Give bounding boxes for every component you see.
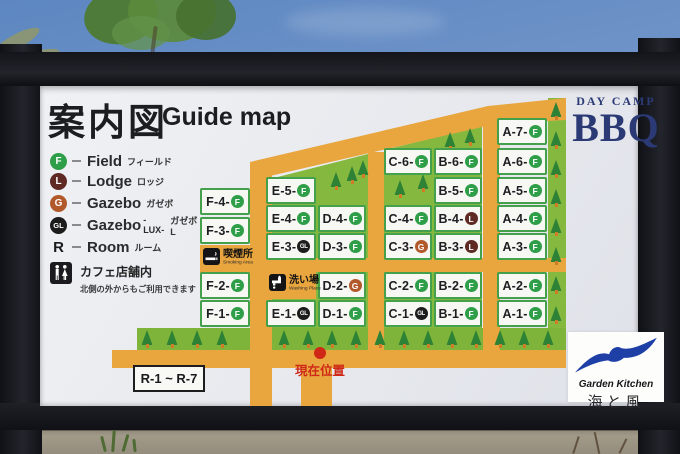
room-range-box: R-1 ~ R-7 — [133, 365, 205, 392]
sign-frame-top — [0, 52, 680, 86]
twig — [594, 432, 601, 454]
grass-strip-bottom — [137, 328, 566, 350]
sign-post-left — [0, 44, 42, 454]
plant — [122, 434, 130, 452]
washing-label-en: Washing Place — [289, 286, 321, 291]
tree-foliage — [112, 16, 170, 50]
road-vertical-3 — [483, 124, 500, 350]
grass-block-cb — [384, 126, 482, 350]
sign-face: 案内図 Guide map DAY CAMP BBQ F Field フィールド… — [40, 86, 638, 406]
plant — [100, 436, 107, 452]
garden-kitchen-logo: Garden Kitchen 海と風 — [568, 332, 664, 402]
twig — [572, 436, 579, 454]
guide-map-sign-photo: 案内図 Guide map DAY CAMP BBQ F Field フィールド… — [0, 0, 680, 454]
road-vertical-2 — [368, 152, 384, 350]
plant — [132, 439, 136, 452]
smoking-label-en: Smoking Area — [223, 260, 253, 265]
grass-block-ed — [266, 154, 368, 350]
washing-area-label: 洗い場 Washing Place — [269, 274, 317, 296]
smoking-icon — [203, 248, 220, 270]
grass-strip-right — [548, 98, 566, 350]
seabird-icon — [571, 336, 661, 376]
current-location-label: 現在位置 — [280, 360, 360, 379]
current-location-dot — [314, 347, 326, 359]
garden-kitchen-label: Garden Kitchen — [568, 379, 664, 390]
twig — [619, 438, 628, 453]
smoking-area-label: 喫煙所 Smoking Area — [203, 248, 251, 270]
umi-to-kaze-label: 海と風 — [568, 391, 664, 412]
plant — [111, 430, 116, 452]
map-ground-layers — [40, 86, 638, 406]
washing-icon — [269, 274, 286, 296]
cloud — [285, 8, 445, 36]
